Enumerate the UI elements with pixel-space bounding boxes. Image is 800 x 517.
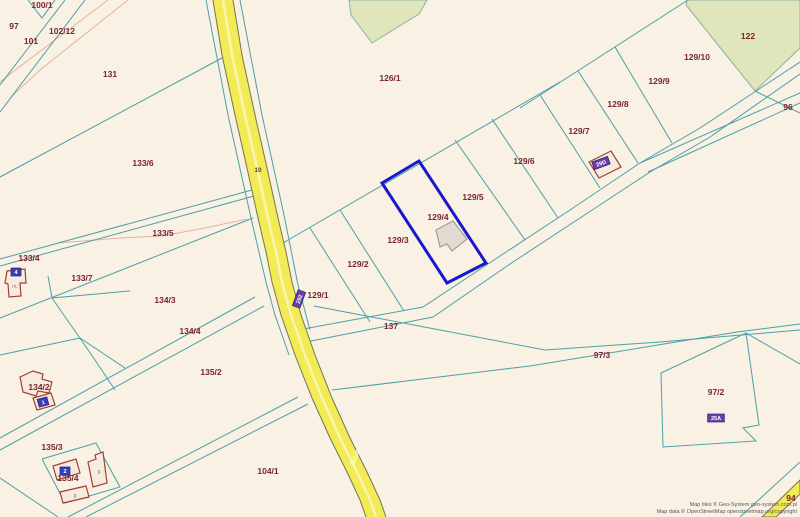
building-letter: g [98,469,101,475]
cadastral-map-svg[interactable]: m.gg41229229D25A100/197102/12101131126/1… [0,0,800,517]
parcel-label-137: 137 [384,321,398,331]
parcel-label-135-2: 135/2 [200,367,222,377]
address-badge[interactable]: 4 [11,268,21,276]
parcel-label-131: 131 [103,69,117,79]
parcel-label-129-6: 129/6 [513,156,535,166]
parcel-label-129-10: 129/10 [684,52,710,62]
parcel-label-97-3: 97/3 [594,350,611,360]
parcel-label-126-1: 126/1 [379,73,401,83]
parcel-label-135-3: 135/3 [41,442,63,452]
address-badge-text: 25A [711,416,721,422]
building-letter: g [74,493,77,499]
road-label-10: 10 [254,167,262,174]
address-badge[interactable]: 25A [708,414,725,422]
parcel-label-100-1: 100/1 [31,0,53,10]
building-letter: m. [12,284,18,290]
parcel-label-134-3: 134/3 [154,295,176,305]
map-attribution: Map tiles © Geo-System geo-system.com.pl… [657,502,797,516]
parcel-label-129-4: 129/4 [427,212,449,222]
parcel-label-133-7: 133/7 [71,273,93,283]
parcel-label-135-4: 135/4 [57,473,79,483]
parcel-label-133-4: 133/4 [18,253,40,263]
parcel-label-97: 97 [9,21,19,31]
attribution-tiles-link[interactable]: Map tiles © Geo-System geo-system.com.pl [657,502,797,509]
attribution-data-link[interactable]: Map data © OpenStreetMap openstreetmap.o… [657,509,797,516]
parcel-label-129-1: 129/1 [307,290,329,300]
parcel-label-129-3: 129/3 [387,235,409,245]
parcel-label-129-8: 129/8 [607,99,629,109]
parcel-label-133-6: 133/6 [132,158,154,168]
parcel-label-129-7: 129/7 [568,126,590,136]
parcel-label-129-9: 129/9 [648,76,670,86]
parcel-label-96: 96 [783,102,793,112]
parcel-label-133-5: 133/5 [152,228,174,238]
parcel-label-101: 101 [24,36,38,46]
parcel-label-129-5: 129/5 [462,192,484,202]
map-canvas[interactable]: m.gg41229229D25A100/197102/12101131126/1… [0,0,800,517]
parcel-label-97-2: 97/2 [708,387,725,397]
parcel-label-134-2: 134/2 [28,382,50,392]
parcel-label-129-2: 129/2 [347,259,369,269]
parcel-label-102-12: 102/12 [49,26,75,36]
parcel-label-122: 122 [741,31,755,41]
parcel-label-104-1: 104/1 [257,466,279,476]
parcel-label-134-4: 134/4 [179,326,201,336]
